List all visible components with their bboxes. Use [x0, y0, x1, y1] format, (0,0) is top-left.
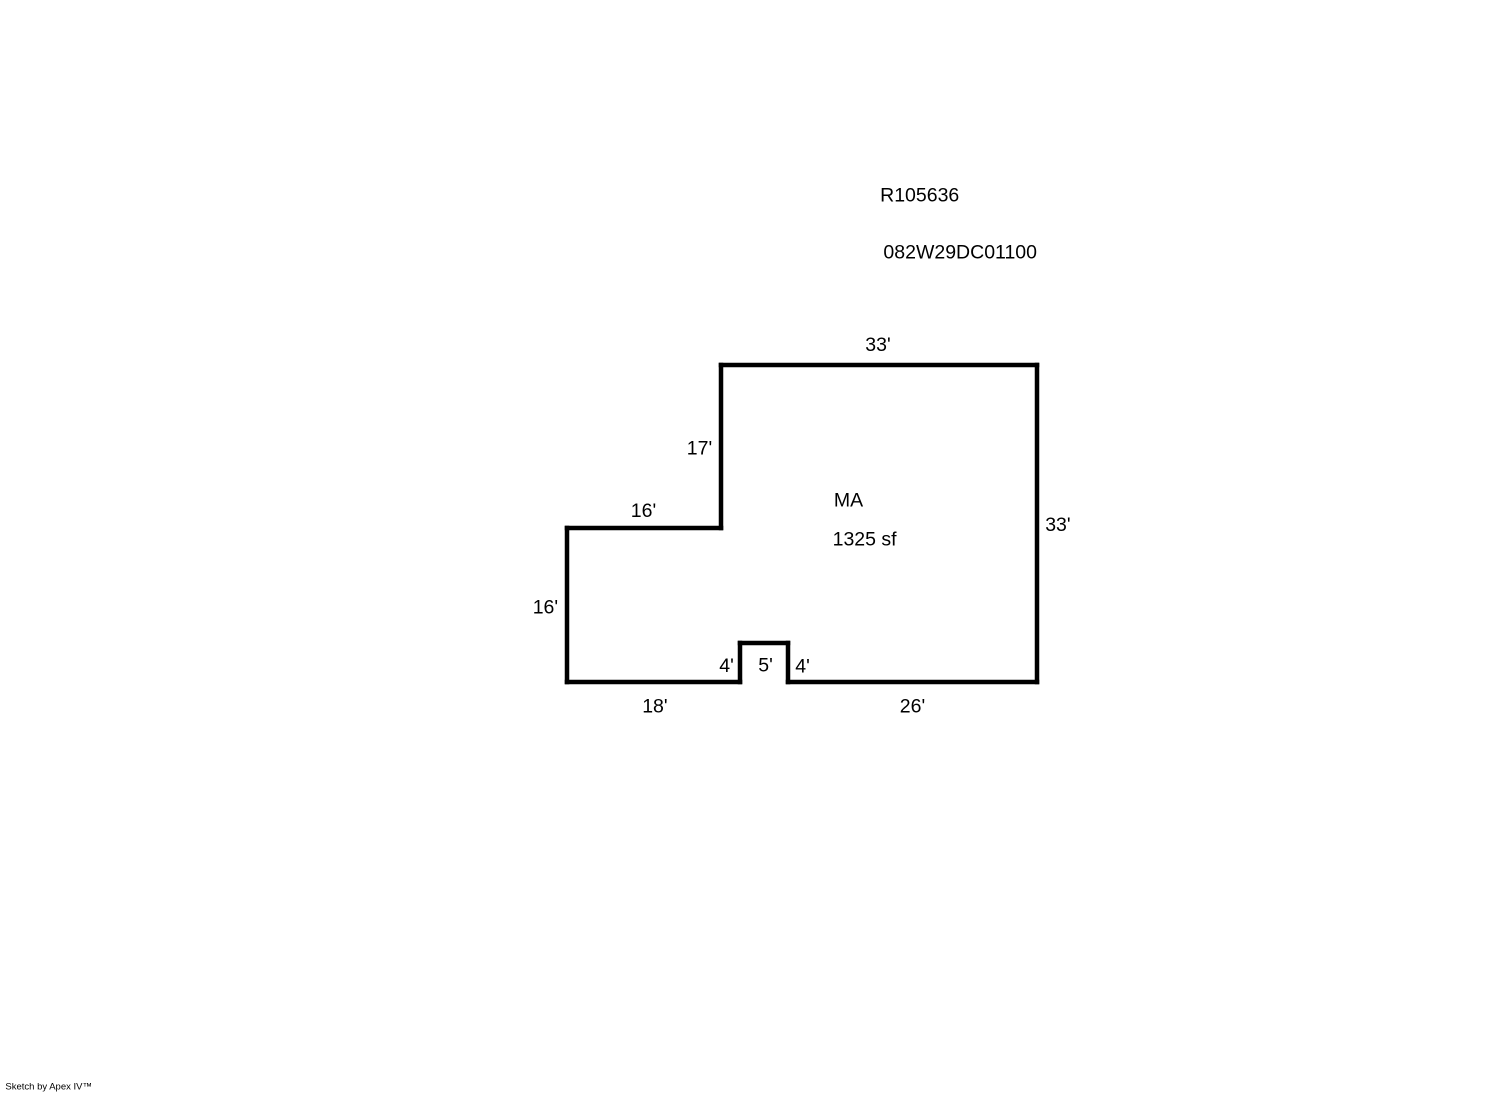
svg-text:MA: MA — [834, 490, 863, 512]
svg-text:R105636: R105636 — [880, 184, 959, 206]
svg-text:Sketch by Apex IV™: Sketch by Apex IV™ — [5, 1082, 92, 1093]
svg-text:26': 26' — [900, 696, 925, 718]
svg-text:17': 17' — [687, 438, 712, 460]
svg-text:33': 33' — [865, 334, 890, 356]
svg-text:4': 4' — [719, 655, 734, 677]
svg-text:16': 16' — [533, 596, 558, 618]
svg-text:4': 4' — [795, 655, 810, 677]
svg-text:5': 5' — [758, 654, 773, 676]
svg-text:33': 33' — [1045, 514, 1070, 536]
svg-text:1325 sf: 1325 sf — [833, 529, 898, 551]
svg-text:18': 18' — [642, 696, 667, 718]
svg-text:082W29DC01100: 082W29DC01100 — [883, 241, 1037, 263]
svg-text:16': 16' — [631, 500, 656, 522]
